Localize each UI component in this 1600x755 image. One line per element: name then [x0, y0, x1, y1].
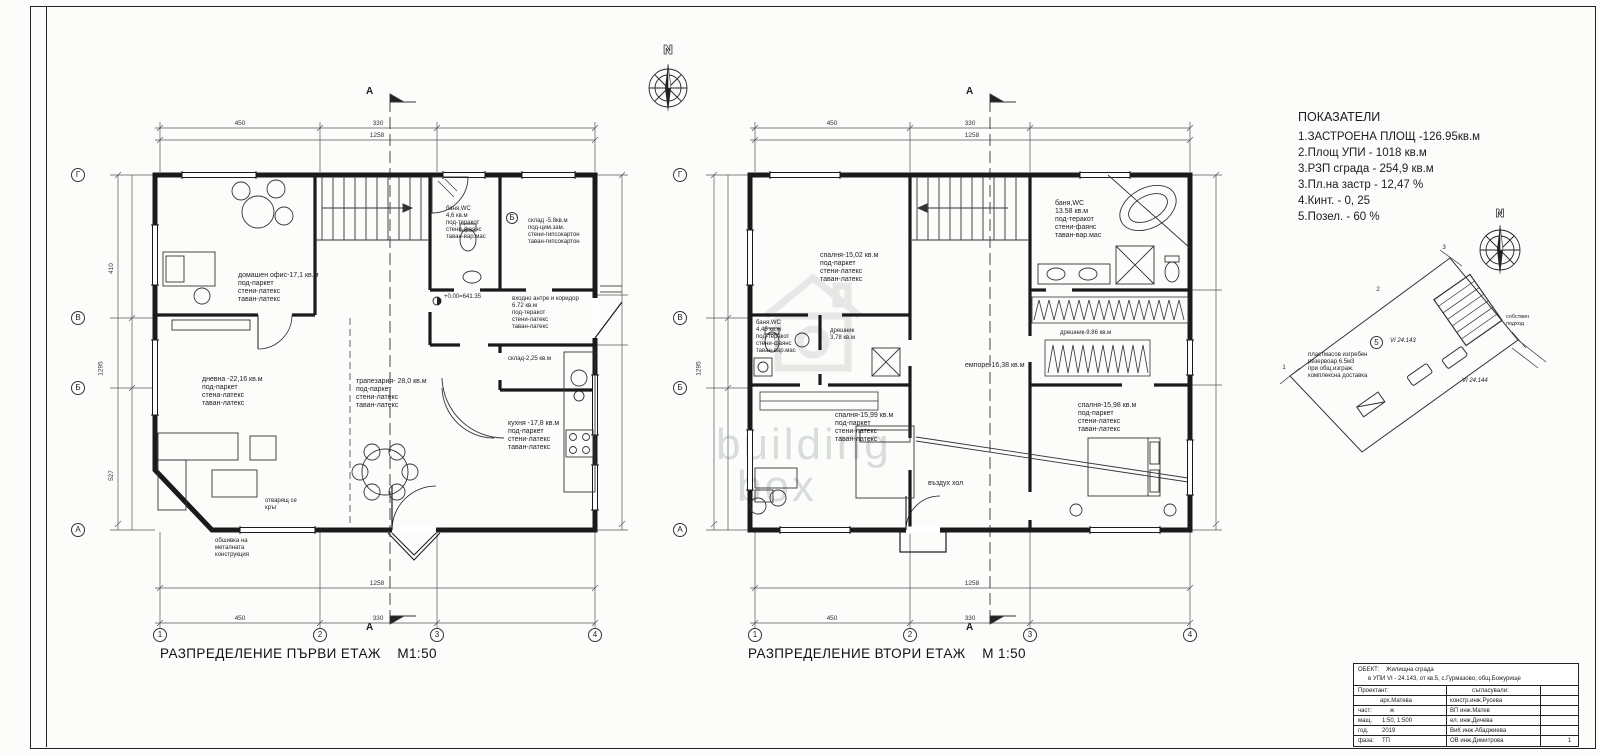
section-mark-a-bottom: А [366, 622, 373, 633]
indicators-title: ПОКАЗАТЕЛИ [1298, 110, 1480, 124]
indicator-plot-area: 2.Площ УПИ - 1018 кв.м [1298, 145, 1480, 161]
titleblock-phase-label: фаза: [1358, 737, 1374, 745]
room-label-living: дневна -22,16 кв.мпод-паркет стена-латек… [202, 376, 263, 408]
site-corner-1: 1 [1282, 364, 1286, 371]
titleblock-year-label: год. [1358, 727, 1368, 735]
titleblock-designer-label: Проектант: [1358, 687, 1389, 695]
site-parcel-label: VI 24.143 [1390, 338, 1416, 345]
binding-margin-line [46, 6, 47, 747]
dim-top-1: 450 [827, 120, 838, 127]
detail-mark-b: Б [506, 212, 518, 224]
dim-top-1: 450 [235, 120, 246, 127]
titleblock-object-name: Жилищна сграда [1386, 666, 1434, 674]
dim-top-total: 1258 [965, 132, 979, 139]
grid-bubble-2: 2 [903, 628, 917, 642]
grid-bubble-row-g: Г [673, 168, 687, 182]
site-corner-3: 3 [1442, 244, 1446, 251]
grid-bubble-row-v: В [71, 311, 85, 325]
site-note: пластмасов изгребенрезервоар 6.5м3при об… [1308, 352, 1367, 380]
dim-top-total: 1258 [370, 132, 384, 139]
note-opening: отварящ секръг [265, 498, 297, 512]
grid-bubble-row-v: В [673, 311, 687, 325]
site-access-label: собственподход [1506, 314, 1529, 327]
titleblock-sheet-number: 1 [1568, 737, 1571, 745]
room-label-closet2: дрешник-9.86 кв.м [1060, 330, 1111, 337]
titleblock-part-value: ж [1390, 707, 1394, 715]
floor-plan-second: спалня-15,02 кв.мпод-паркет стени-латекс… [660, 40, 1300, 650]
site-corner-2: 2 [1376, 286, 1380, 293]
room-label-office: домашен офис-17,1 кв.мпод-паркет стени-л… [238, 272, 319, 304]
grid-bubble-row-b: Б [71, 381, 85, 395]
dim-left-3: 527 [108, 470, 115, 481]
grid-bubble-3: 3 [430, 628, 444, 642]
titleblock-eng-structural: констр.инж.Русева [1450, 697, 1502, 705]
titleblock-eng-hvac: ОВ инж.Димитрова [1450, 737, 1503, 745]
caption-second-floor-text: РАЗПРЕДЕЛЕНИЕ ВТОРИ ЕТАЖ [748, 646, 966, 661]
section-mark-a-bottom: А [966, 622, 973, 633]
dim-bottom-2: 330 [965, 615, 976, 622]
room-label-bath1: баня,WC4,6 кв.м под-теракотстени-фаянс т… [446, 206, 486, 241]
site-parcel2-label: VI 24.144 [1462, 378, 1488, 385]
section-mark-a-top: А [966, 86, 973, 97]
caption-second-floor-scale: М 1:50 [982, 646, 1026, 661]
dim-bottom-total: 1258 [965, 580, 979, 587]
grid-bubble-row-a: А [673, 523, 687, 537]
room-label-bedroom1: спалня-15,02 кв.мпод-паркет стени-латекс… [820, 252, 878, 284]
dim-left-total: 1295 [696, 361, 703, 375]
titleblock-agreed-label: съгласували: [1472, 687, 1509, 695]
grid-bubble-4: 4 [588, 628, 602, 642]
note-metal-structure: обшивка наметалнатаконструкция [215, 538, 249, 559]
dim-top-2: 330 [965, 120, 976, 127]
caption-first-floor-scale: М1:50 [397, 646, 437, 661]
elevation-label: +0.00=641.35 [444, 294, 481, 301]
dim-bottom-1: 450 [235, 615, 246, 622]
titleblock-eng-plumbing: ВиК инж.Абаджиева [1450, 727, 1506, 735]
grid-bubble-1: 1 [153, 628, 167, 642]
room-label-closet1: дрешник3,78 кв.м [830, 328, 855, 342]
site-lot-badge: 5 [1370, 336, 1383, 349]
grid-bubble-2: 2 [313, 628, 327, 642]
grid-bubble-3: 3 [1023, 628, 1037, 642]
drawing-sheet: building box [0, 0, 1600, 755]
room-label-bedroom2: спалня-15,99 кв.мпод-паркет стени-латекс… [835, 412, 893, 444]
room-label-hall: входно антре и коридор6.72 кв.м под-тера… [512, 296, 579, 331]
titleblock-object-address: в УПИ VI - 24.143, от кв.5, с.Гурмазово,… [1368, 675, 1521, 683]
titleblock-eng-vp: ВП инж.Матев [1450, 707, 1490, 715]
site-plan: 1 2 3 5 VI 24.143 VI 24.144 пластмасов и… [1250, 190, 1560, 460]
dim-bottom-1: 450 [827, 615, 838, 622]
room-label-storage2: склад-2,25 кв.м [508, 356, 551, 363]
room-label-bath-main: баня,WC13.58 кв.м под-теракотстени-фаянс… [1055, 200, 1101, 240]
room-label-dining: трапезария- 28,0 кв.мпод-паркет стени-ла… [356, 378, 427, 410]
indicator-built-area: 1.ЗАСТРОЕНА ПЛОЩ -126.95кв.м [1298, 129, 1480, 145]
grid-bubble-row-a: А [71, 523, 85, 537]
dim-top-2: 330 [373, 120, 384, 127]
compass-main: N [638, 40, 698, 116]
room-label-gallery: емпоре-16,38 кв.м [965, 362, 1025, 370]
titleblock-object-label: ОБЕКТ: [1358, 666, 1379, 674]
room-label-storage: склад -5.8кв.мпод-цим.зам. стени-гипсока… [528, 218, 580, 246]
room-label-void: въздух хол [928, 480, 963, 488]
titleblock-eng-electrical: ел. инж.Дичева [1450, 717, 1493, 725]
grid-bubble-1: 1 [748, 628, 762, 642]
room-label-bedroom3: спалня-15,98 кв.мпод-паркет стени-латекс… [1078, 402, 1136, 434]
dim-bottom-total: 1258 [370, 580, 384, 587]
caption-second-floor: РАЗПРЕДЕЛЕНИЕ ВТОРИ ЕТАЖ М 1:50 [748, 646, 1026, 661]
title-block: ОБЕКТ: Жилищна сграда в УПИ VI - 24.143,… [1353, 663, 1579, 747]
grid-bubble-row-g: Г [71, 168, 85, 182]
titleblock-phase-value: ТП [1382, 737, 1390, 745]
grid-bubble-4: 4 [1183, 628, 1197, 642]
compass-n-label: N [663, 43, 673, 57]
titleblock-part-label: част: [1358, 707, 1372, 715]
dim-left-1: 410 [108, 263, 115, 274]
titleblock-year-value: 2019 [1382, 727, 1395, 735]
section-mark-a-top: А [366, 86, 373, 97]
titleblock-designer: арх.Матева [1380, 697, 1412, 705]
floor-plan-first: домашен офис-17,1 кв.мпод-паркет стени-л… [60, 40, 700, 650]
titleblock-scale-value: 1:50, 1:500 [1382, 717, 1412, 725]
indicator-total-area: 3.РЗП сграда - 254,9 кв.м [1298, 161, 1480, 177]
room-label-kitchen: кухня -17,8 кв.мпод-паркет стени-латекст… [508, 420, 559, 452]
dim-left-2: 1295 [98, 361, 105, 375]
room-label-bath2: баня,WC4,45 кв.м под-теракотстени-фаянс … [756, 320, 796, 355]
caption-first-floor-text: РАЗПРЕДЕЛЕНИЕ ПЪРВИ ЕТАЖ [160, 646, 381, 661]
titleblock-scale-label: мащ. [1358, 717, 1372, 725]
dim-bottom-2: 330 [373, 615, 384, 622]
grid-bubble-row-b: Б [673, 381, 687, 395]
caption-first-floor: РАЗПРЕДЕЛЕНИЕ ПЪРВИ ЕТАЖ М1:50 [160, 646, 437, 661]
